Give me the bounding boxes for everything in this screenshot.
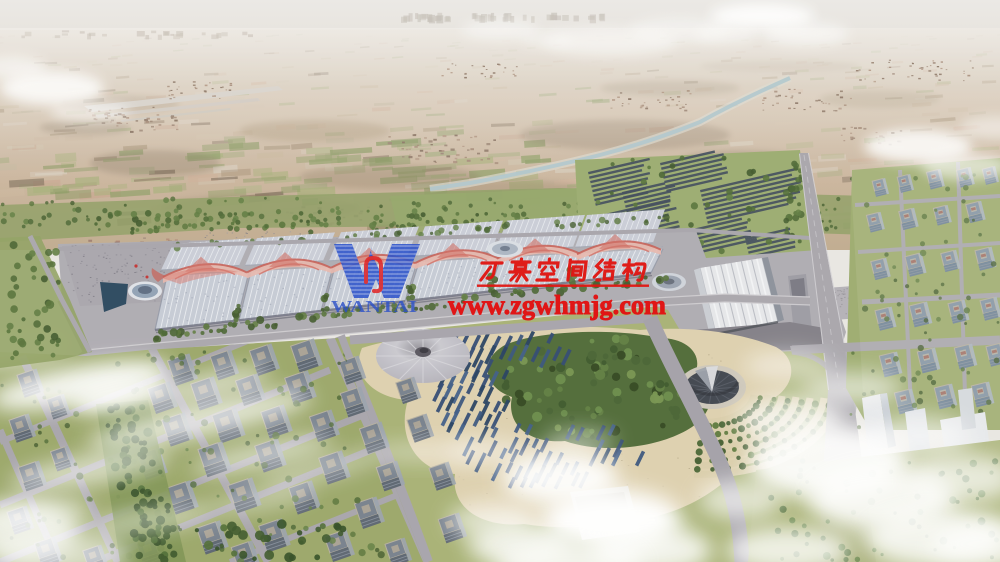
- svg-text:WANTAI: WANTAI: [331, 297, 417, 316]
- svg-text:www.zgwhmjg.com: www.zgwhmjg.com: [448, 290, 666, 320]
